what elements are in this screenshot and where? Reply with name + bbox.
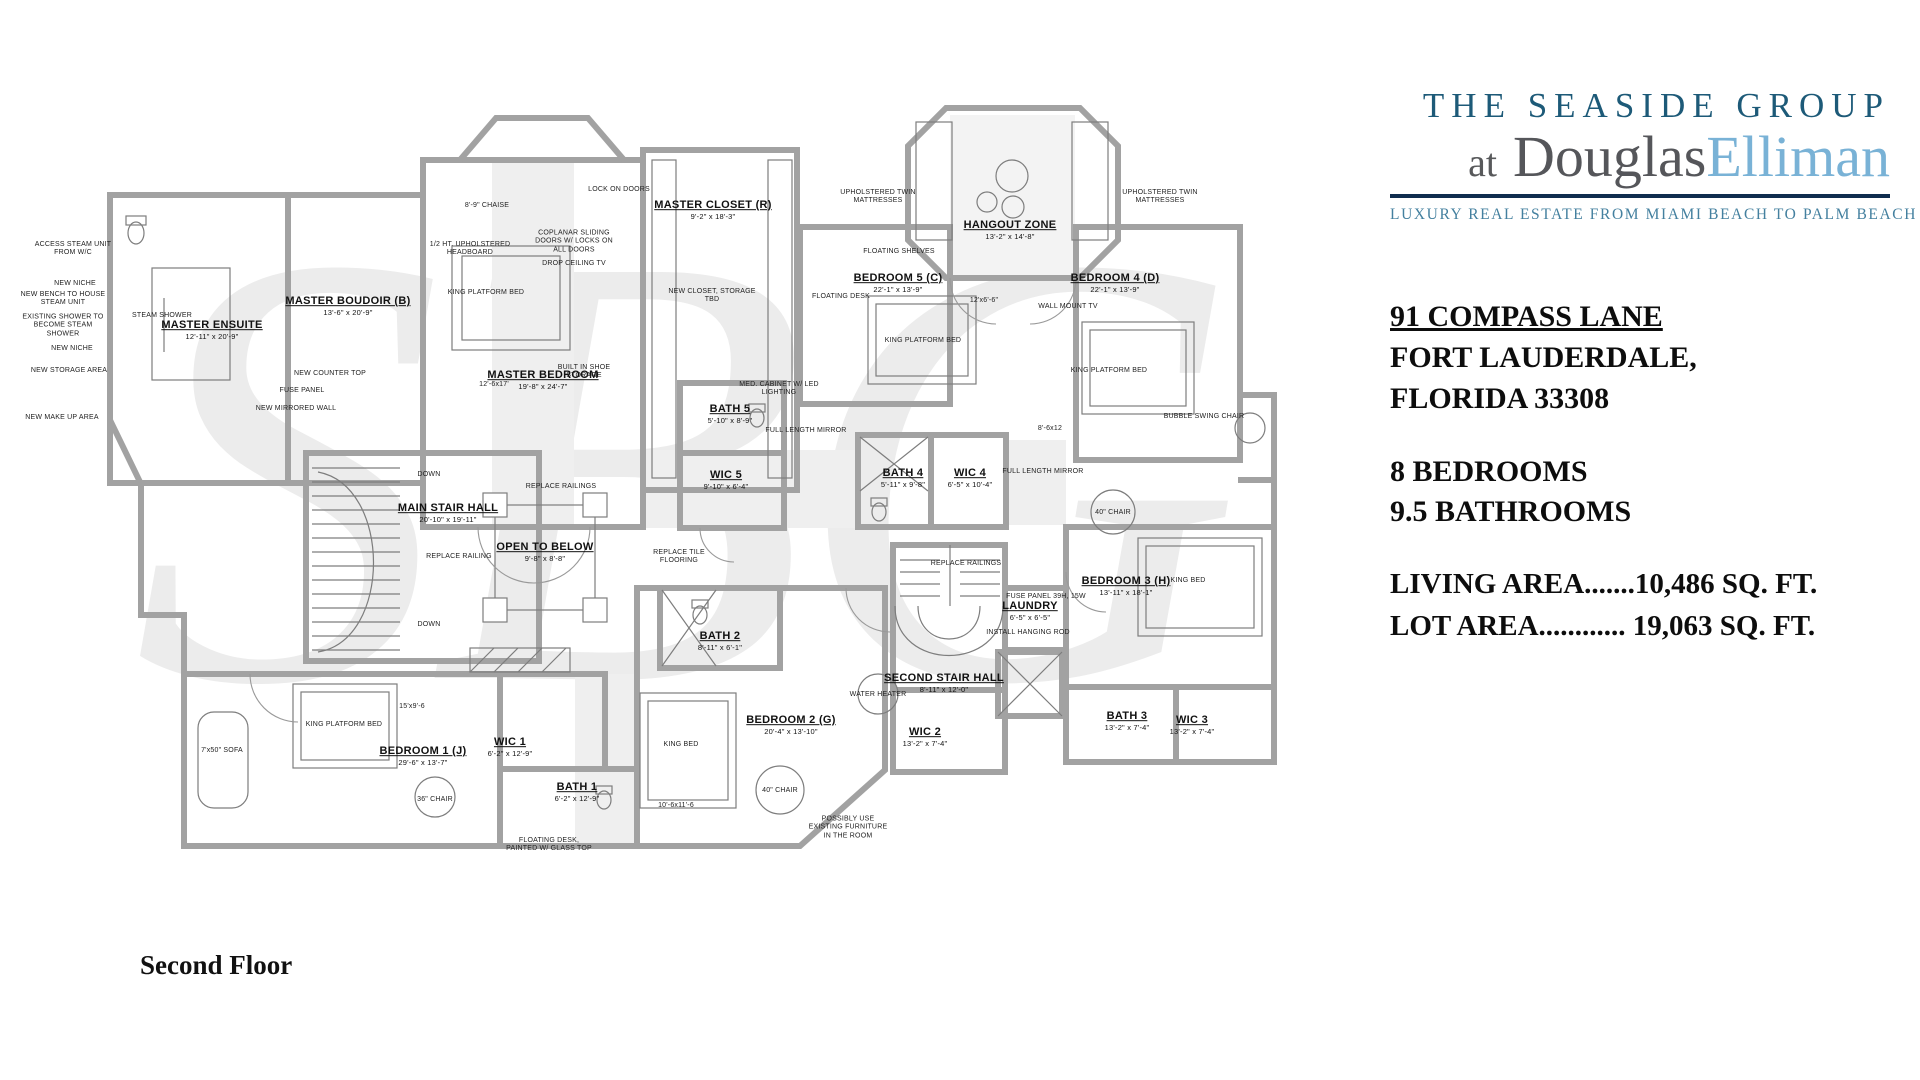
plan-annotation: WATER HEATER <box>850 691 907 699</box>
plan-annotation: BUBBLE SWING CHAIR <box>1164 413 1245 421</box>
room-label: BEDROOM 5 (C)22'-1" x 13'-9" <box>854 272 943 294</box>
plan-annotation: 36" CHAIR <box>417 796 453 804</box>
address-line2: FORT LAUDERDALE, <box>1390 337 1697 378</box>
room-label: BATH 313'-2" x 7'-4" <box>1105 710 1150 732</box>
plan-annotation: MED. CABINET W/ LED LIGHTING <box>735 381 823 398</box>
brand-group-name: THE SEASIDE GROUP <box>1390 86 1890 126</box>
plan-annotation: WALL MOUNT TV <box>1038 303 1097 311</box>
room-label: MASTER ENSUITE12'-11" x 20'-9" <box>161 319 262 341</box>
address-line1: 91 COMPASS LANE <box>1390 296 1697 337</box>
plan-annotation: 12'-6x17' <box>479 381 509 389</box>
room-label: BATH 28'-11" x 6'-1" <box>698 630 742 652</box>
room-label: BEDROOM 1 (J)29'-6" x 13'-7" <box>379 745 466 767</box>
room-label: WIC 46'-5" x 10'-4" <box>948 467 993 489</box>
room-label: WIC 16'-2" x 12'-9" <box>488 736 533 758</box>
brand-tagline: LUXURY REAL ESTATE FROM MIAMI BEACH TO P… <box>1390 206 1890 224</box>
brand-at: at <box>1468 140 1507 185</box>
room-label: BEDROOM 3 (H)13'-11" x 18'-1" <box>1082 575 1171 597</box>
plan-annotation: 10'-6x11'-6 <box>658 802 694 810</box>
plan-annotation: 15'x9'-6 <box>399 703 425 711</box>
plan-annotation: 40" CHAIR <box>762 787 798 795</box>
plan-annotation: REPLACE TILE FLOORING <box>635 549 723 566</box>
plan-annotation: POSSIBLY USE EXISTING FURNITURE IN THE R… <box>804 816 892 841</box>
plan-annotation: 40" CHAIR <box>1095 509 1131 517</box>
plan-annotation: KING PLATFORM BED <box>885 337 961 345</box>
brand-elliman: Elliman <box>1706 124 1890 189</box>
listing-address: 91 COMPASS LANE FORT LAUDERDALE, FLORIDA… <box>1390 296 1697 419</box>
plan-annotation: STEAM SHOWER <box>132 312 192 320</box>
plan-annotation: KING BED <box>663 741 698 749</box>
plan-annotation: 1/2 HT. UPHOLSTERED HEADBOARD <box>426 241 514 258</box>
bathrooms-count: 9.5 BATHROOMS <box>1390 492 1631 532</box>
plan-labels: MASTER ENSUITE12'-11" x 20'-9"MASTER BOU… <box>0 0 1360 1080</box>
brand-douglas: Douglas <box>1513 124 1706 189</box>
plan-annotation: NEW NICHE <box>54 280 96 288</box>
room-label: BATH 55'-10" x 8'-9" <box>708 403 753 425</box>
bedrooms-count: 8 BEDROOMS <box>1390 452 1631 492</box>
room-label: WIC 213'-2" x 7'-4" <box>903 726 948 748</box>
lot-area: LOT AREA............ 19,063 SQ. FT. <box>1390 605 1817 647</box>
plan-annotation: NEW STORAGE AREA <box>31 367 107 375</box>
plan-annotation: NEW NICHE <box>51 345 93 353</box>
plan-annotation: ACCESS STEAM UNIT FROM W/C <box>29 241 117 258</box>
brand-elliman-lockup: at DouglasElliman <box>1390 128 1890 186</box>
plan-annotation: DOWN <box>418 471 441 479</box>
room-label: MASTER BOUDOIR (B)13'-6" x 20'-9" <box>285 295 410 317</box>
living-area: LIVING AREA.......10,486 SQ. FT. <box>1390 563 1817 605</box>
plan-annotation: NEW COUNTER TOP <box>294 370 366 378</box>
plan-annotation: FULL LENGTH MIRROR <box>1002 468 1083 476</box>
plan-annotation: FULL LENGTH MIRROR <box>765 427 846 435</box>
brand-divider-rule <box>1390 194 1890 198</box>
room-label: LAUNDRY6'-5" x 6'-5" <box>1002 600 1057 622</box>
plan-annotation: DROP CEILING TV <box>542 260 606 268</box>
plan-annotation: EXISTING SHOWER TO BECOME STEAM SHOWER <box>19 314 107 339</box>
plan-annotation: LOCK ON DOORS <box>588 186 650 194</box>
plan-annotation: REPLACE RAILING <box>426 553 492 561</box>
plan-annotation: 7'x50" SOFA <box>201 747 243 755</box>
flyer-page: SBG <box>0 0 1920 1080</box>
plan-annotation: KING BED <box>1170 577 1205 585</box>
room-label: BATH 16'-2" x 12'-9" <box>555 781 600 803</box>
room-label: BATH 45'-11" x 9'-8" <box>881 467 925 489</box>
listing-rooms: 8 BEDROOMS 9.5 BATHROOMS <box>1390 452 1631 532</box>
room-label: BEDROOM 2 (G)20'-4" x 13'-10" <box>746 714 835 736</box>
room-label: WIC 313'-2" x 7'-4" <box>1170 714 1215 736</box>
info-panel: THE SEASIDE GROUP at DouglasElliman LUXU… <box>1390 0 1890 1080</box>
plan-annotation: REPLACE RAILINGS <box>526 483 597 491</box>
plan-annotation: FLOATING DESK <box>812 293 870 301</box>
plan-annotation: INSTALL HANGING ROD <box>986 629 1070 637</box>
plan-annotation: KING PLATFORM BED <box>448 289 524 297</box>
plan-annotation: FLOATING SHELVES <box>863 248 934 256</box>
plan-annotation: FUSE PANEL <box>279 387 324 395</box>
room-label: BEDROOM 4 (D)22'-1" x 13'-9" <box>1071 272 1160 294</box>
listing-areas: LIVING AREA.......10,486 SQ. FT. LOT ARE… <box>1390 563 1817 647</box>
room-label: HANGOUT ZONE13'-2" x 14'-8" <box>964 219 1057 241</box>
plan-annotation: 8'-6x12 <box>1038 425 1062 433</box>
floor-title: Second Floor <box>140 950 292 981</box>
room-label: MASTER CLOSET (R)9'-2" x 18'-3" <box>654 199 772 221</box>
plan-annotation: 8'-9" CHAISE <box>465 202 509 210</box>
room-label: OPEN TO BELOW9'-8" x 8'-8" <box>496 541 593 563</box>
plan-annotation: NEW BENCH TO HOUSE STEAM UNIT <box>19 291 107 308</box>
plan-annotation: FUSE PANEL 39H, 15W <box>1006 593 1086 601</box>
plan-annotation: DOWN <box>418 621 441 629</box>
address-line3: FLORIDA 33308 <box>1390 378 1697 419</box>
plan-annotation: BUILT IN SHOE STORAGE <box>540 364 628 381</box>
plan-annotation: COPLANAR SLIDING DOORS W/ LOCKS ON ALL D… <box>530 230 618 255</box>
plan-annotation: NEW CLOSET, STORAGE TBD <box>668 288 756 305</box>
floor-plan: MASTER ENSUITE12'-11" x 20'-9"MASTER BOU… <box>0 0 1360 1080</box>
plan-annotation: KING PLATFORM BED <box>1071 367 1147 375</box>
plan-annotation: 12'x6'-6" <box>970 297 998 305</box>
plan-annotation: NEW MAKE UP AREA <box>25 414 98 422</box>
plan-annotation: UPHOLSTERED TWIN MATTRESSES <box>1116 189 1204 206</box>
plan-annotation: FLOATING DESK, PAINTED W/ GLASS TOP <box>505 837 593 854</box>
room-label: WIC 59'-10" x 6'-4" <box>704 469 749 491</box>
plan-annotation: KING PLATFORM BED <box>306 721 382 729</box>
plan-annotation: NEW MIRRORED WALL <box>256 405 337 413</box>
plan-annotation: UPHOLSTERED TWIN MATTRESSES <box>834 189 922 206</box>
room-label: MAIN STAIR HALL20'-10" x 19'-11" <box>398 502 498 524</box>
brand-logo: THE SEASIDE GROUP at DouglasElliman LUXU… <box>1390 86 1890 224</box>
plan-annotation: REPLACE RAILINGS <box>931 560 1002 568</box>
